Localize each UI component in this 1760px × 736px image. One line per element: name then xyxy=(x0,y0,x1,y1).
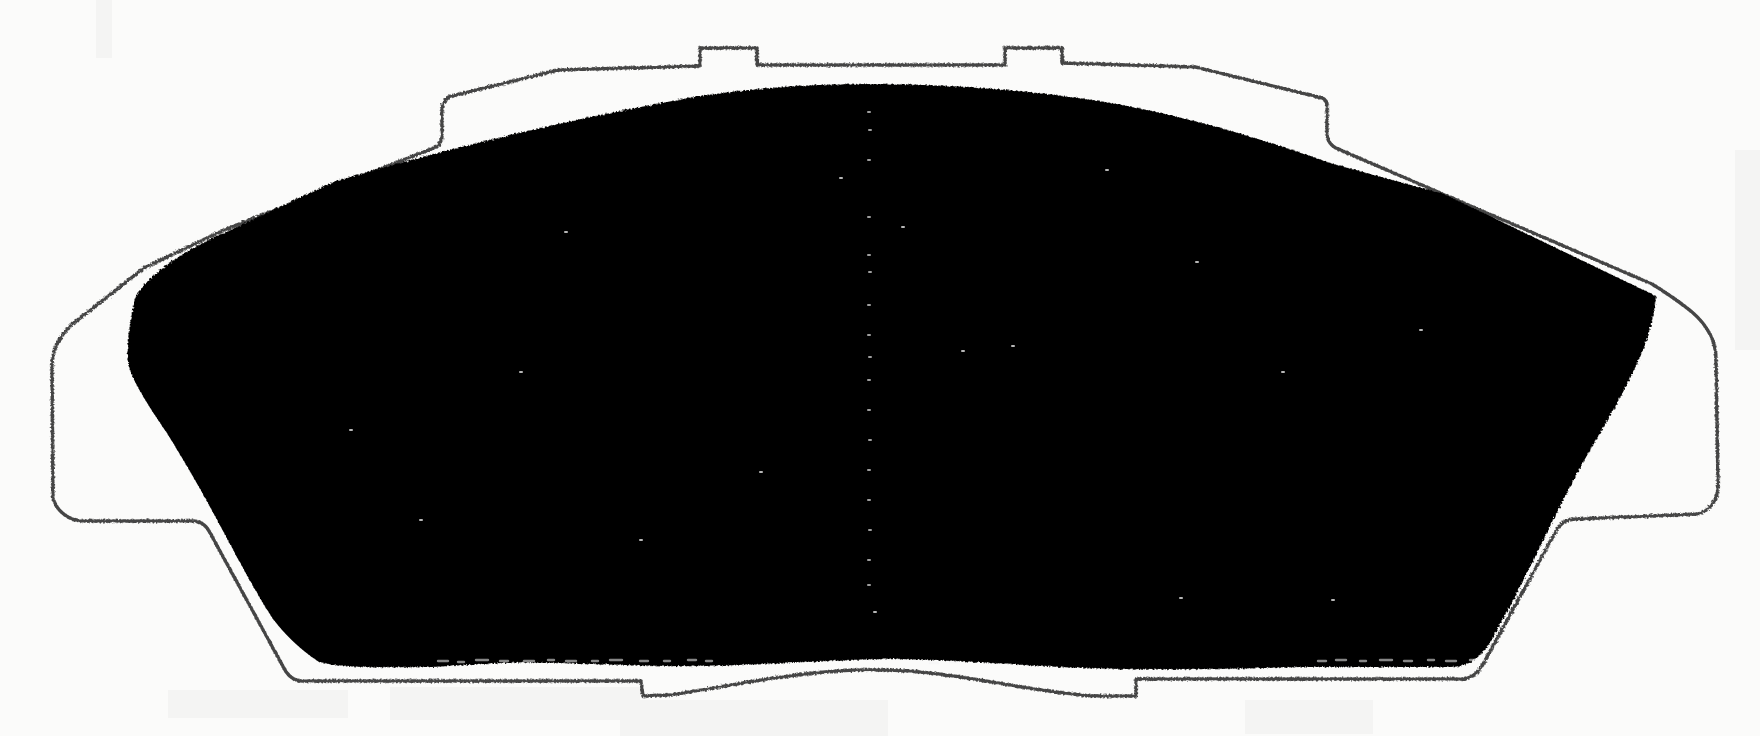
scanned-page: Disc brake pad backing plate outline wit… xyxy=(0,0,1760,736)
brake-pad-diagram: Disc brake pad backing plate outline wit… xyxy=(0,0,1760,736)
